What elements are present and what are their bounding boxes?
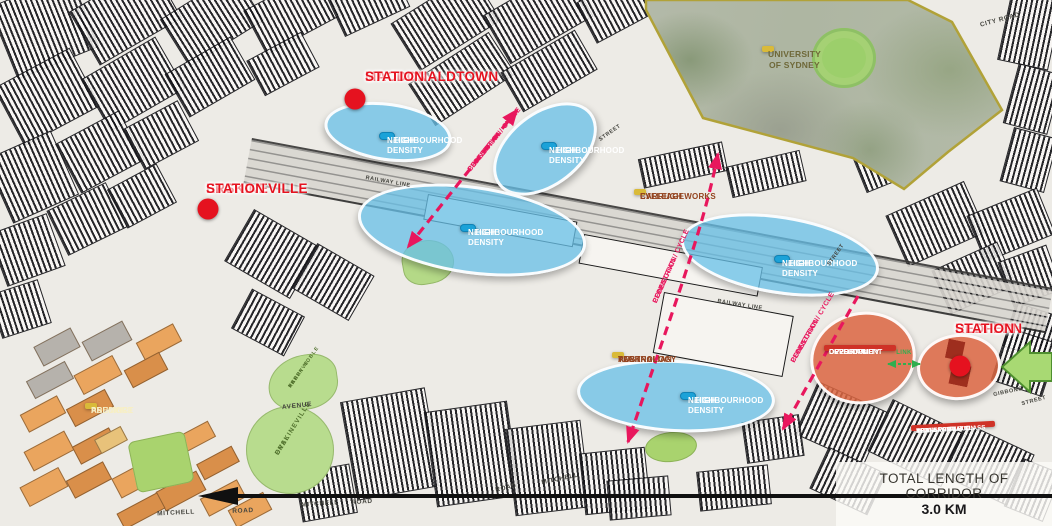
university-photo-border xyxy=(646,0,1002,189)
overlay-graphics xyxy=(0,0,1052,526)
high-density-label-2: HIGH DENSITYNEIGHBOURHOOD xyxy=(541,142,557,150)
corridor-length-value: 3.0 KM xyxy=(866,501,1022,517)
corridor-direction-arrow xyxy=(1002,342,1052,392)
redfern-station-marker xyxy=(950,356,971,377)
map-canvas: MACDONALDTOWNSTATION ERSKINEVILLESTATION… xyxy=(0,0,1052,526)
high-density-label-5: HIGH DENSITYNEIGHBOURHOOD xyxy=(680,392,696,400)
development-opportunity-label: DEVELOPMENTOPPORTUNITYOVER RAIL xyxy=(824,345,896,351)
high-density-label-1: HIGH DENSITYNEIGHBOURHOOD xyxy=(379,132,395,140)
high-density-label-4: HIGH DENSITYNEIGHBOURHOOD xyxy=(774,255,790,263)
link-label: LINK xyxy=(896,350,912,356)
university-of-sydney-label: UNIVERSITY OF SYDNEY xyxy=(762,46,774,52)
eveleigh-carriageworks-label: EVELEIGHCARRIAGEWORKS xyxy=(634,189,646,195)
australian-technology-park-label: AUSTRALIANTECHNOLOGYPARK xyxy=(612,352,624,358)
corridor-length-arrowhead xyxy=(198,487,238,505)
erskineville-station-marker xyxy=(198,199,219,220)
high-density-label-3: HIGH DENSITYNEIGHBOURHOOD xyxy=(460,224,476,232)
street-road-1: ROAD xyxy=(351,498,373,506)
corridor-length-title: TOTAL LENGTH OF CORRIDOR xyxy=(842,471,1046,501)
street-road-2: ROAD xyxy=(232,507,254,515)
ashmore-precinct-label: ASHMOREPRECINCT xyxy=(85,403,97,409)
macdonaldtown-station-marker xyxy=(345,89,366,110)
